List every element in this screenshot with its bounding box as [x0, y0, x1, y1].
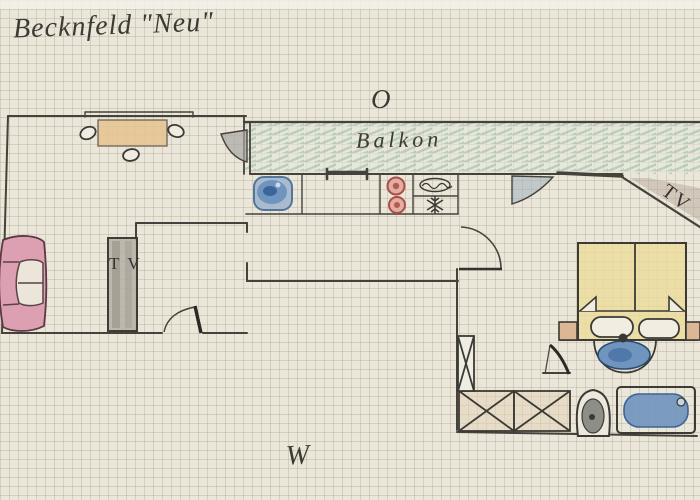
faucet [619, 334, 628, 343]
balcony-hatch [245, 123, 700, 174]
nightstand [559, 322, 577, 340]
sink-drain [263, 186, 277, 196]
stove [388, 178, 406, 214]
dish-rack-dishes [422, 184, 452, 189]
tv-cabinet-label: TV [109, 248, 137, 280]
bathroom-sink-water [608, 348, 632, 362]
floor-plan-drawing [0, 0, 700, 500]
dining-set [78, 120, 185, 162]
balcony-door-right [512, 176, 553, 204]
stove-burner-center [393, 183, 399, 189]
dining-chair [122, 148, 140, 163]
compass-east-label: O [371, 86, 391, 113]
wardrobe [458, 336, 570, 431]
toilet [577, 390, 610, 436]
stove-burner-center [394, 202, 400, 208]
bed [578, 243, 686, 340]
bathtub [617, 387, 695, 433]
kitchen-door [459, 227, 502, 269]
balcony-door-left [221, 130, 247, 162]
sofa [0, 236, 46, 331]
wall-stub-tv-niche [136, 223, 247, 240]
balcony-label: Balkon [356, 128, 443, 152]
kitchen-sink [254, 177, 292, 210]
nightstand [686, 322, 700, 340]
pillow [591, 317, 633, 337]
balcony [245, 123, 700, 174]
entry-door [164, 306, 201, 333]
sink-highlight [276, 183, 281, 188]
plan-title: Becknfeld "Neu" [13, 9, 215, 44]
dining-chair [166, 123, 185, 139]
dining-table [98, 120, 167, 146]
dining-chair [78, 124, 97, 141]
freezer-snowflake-icon [427, 196, 443, 214]
bathroom-door [545, 345, 569, 374]
bathtub-drain [677, 398, 685, 406]
graph-paper-floor-plan: Becknfeld "Neu" O Balkon W TV TV [0, 0, 700, 500]
toilet-drain [589, 414, 595, 420]
pillow [639, 319, 679, 338]
compass-west-label: W [285, 441, 310, 470]
dish-rack [420, 179, 452, 192]
